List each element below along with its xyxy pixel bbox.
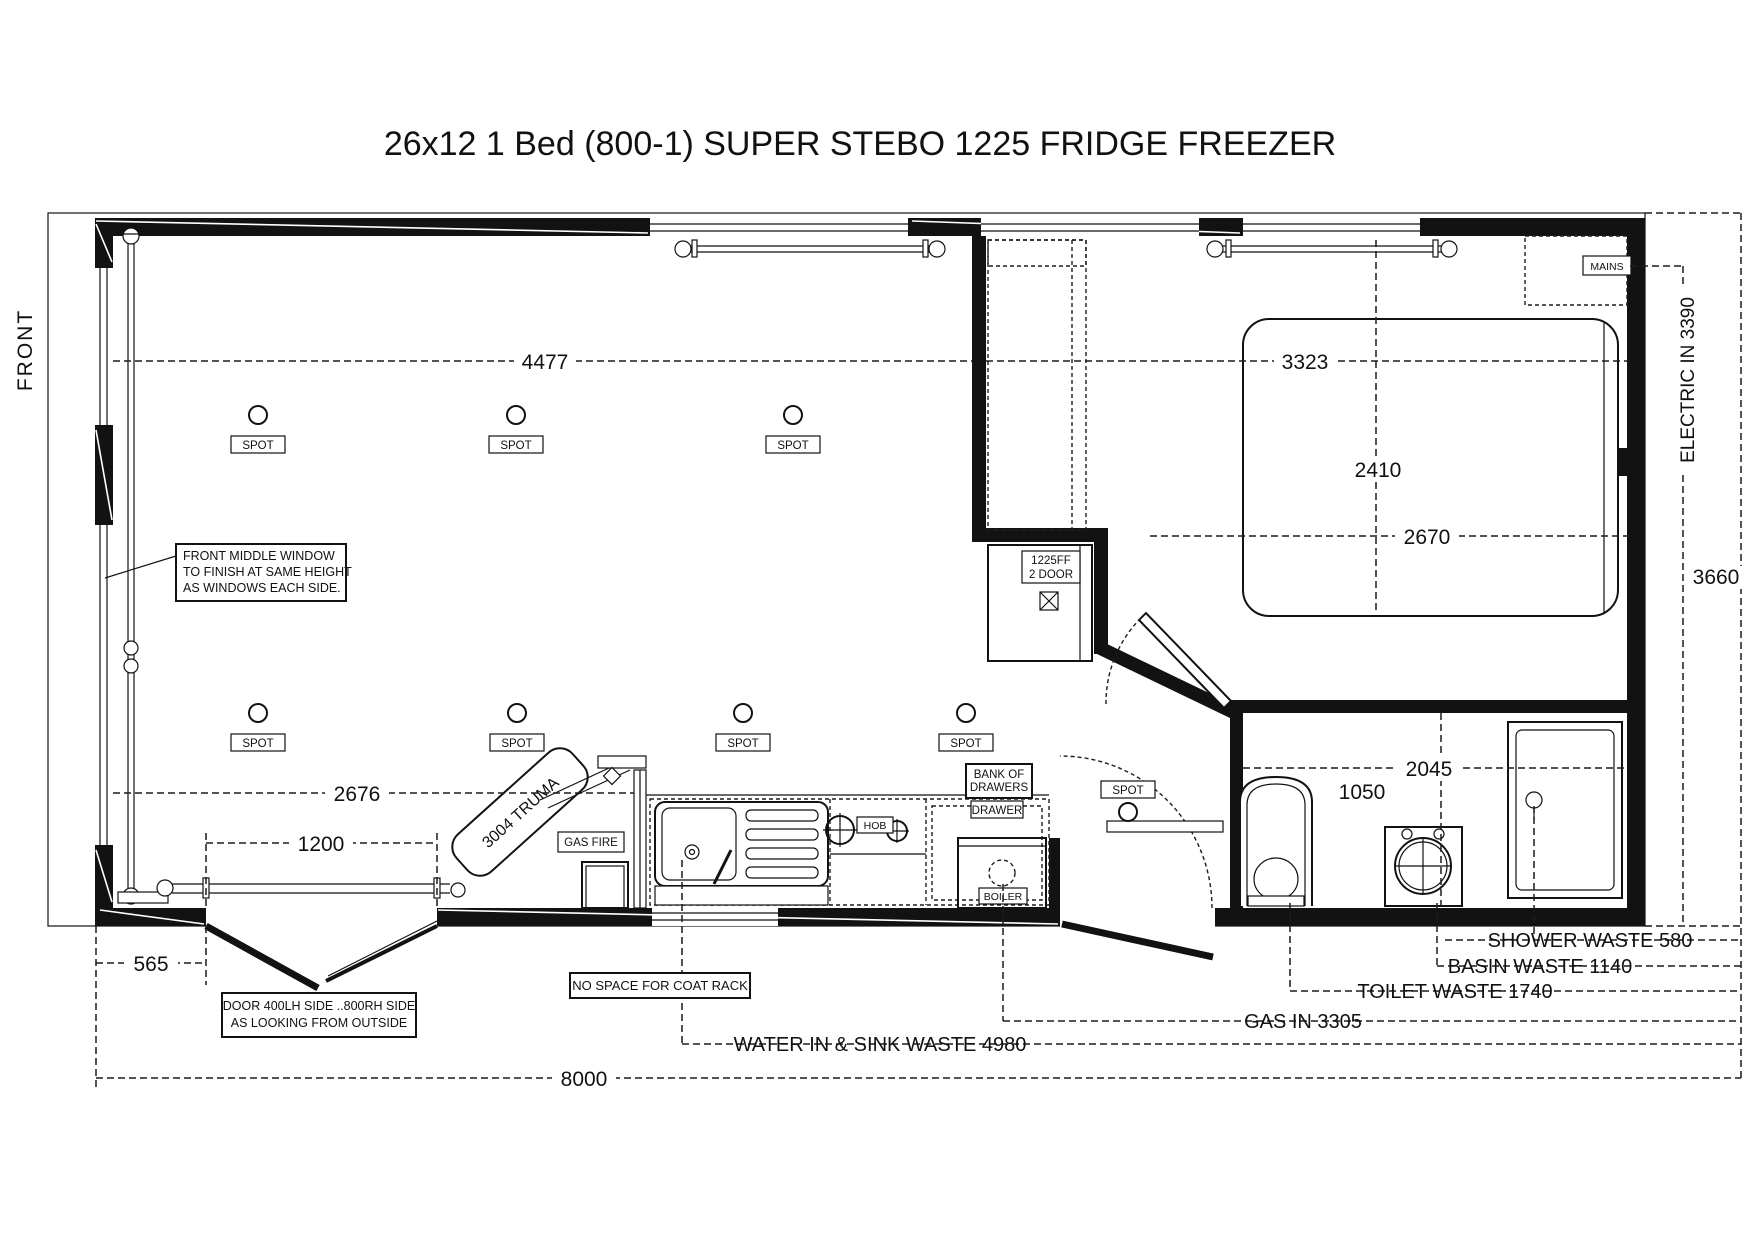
spot-label: SPOT	[727, 738, 758, 750]
spot-label: SPOT	[242, 440, 273, 452]
spotlight-icon	[1119, 803, 1137, 821]
fridge-label-line2: 2 DOOR	[1029, 569, 1073, 581]
basin-tap-left	[1402, 829, 1412, 839]
spotlight-icon	[507, 406, 525, 424]
spot-label: SPOT	[242, 738, 273, 750]
door-rail	[157, 878, 465, 898]
dim-shower-waste: SHOWER WASTE 580	[1488, 930, 1693, 952]
main-door-opening	[206, 906, 437, 928]
dim-3660: 3660	[1693, 566, 1740, 589]
spot-label: SPOT	[1112, 785, 1143, 797]
coat-rack-note: NO SPACE FOR COAT RACK	[570, 973, 750, 998]
boiler-unit: BOILER	[958, 838, 1046, 908]
dim-basin-waste: BASIN WASTE 1140	[1448, 956, 1633, 978]
front-window-lower	[93, 525, 113, 845]
spotlight-icon	[508, 704, 526, 722]
bathroom	[1240, 722, 1622, 906]
spot-label: SPOT	[777, 440, 808, 452]
mains-label: MAINS	[1583, 256, 1631, 275]
toilet-base	[1248, 896, 1304, 906]
shower	[1508, 722, 1622, 898]
bedroom: MAINS	[988, 236, 1631, 616]
front-window-upper	[93, 268, 113, 425]
door-note-line1: DOOR 400LH SIDE ..800RH SIDE	[223, 999, 415, 1013]
front-window-note-line2: TO FINISH AT SAME HEIGHT	[183, 565, 352, 579]
basin-tap-right	[1434, 829, 1444, 839]
dim-2410: 2410	[1355, 459, 1402, 482]
spot-label: SPOT	[950, 738, 981, 750]
dim-electric-in: ELECTRIC IN 3390	[1678, 297, 1699, 463]
hall: SPOT	[1101, 781, 1223, 832]
page-title: 26x12 1 Bed (800-1) SUPER STEBO 1225 FRI…	[384, 125, 1336, 163]
dim-8000: 8000	[561, 1068, 608, 1091]
spotlight-icon	[734, 704, 752, 722]
hob-unit: HOB	[823, 813, 926, 854]
spot-label: SPOT	[500, 440, 531, 452]
dim-1050: 1050	[1339, 781, 1386, 804]
curtain-rail-front	[112, 228, 168, 904]
kitchen: HOB BANK OF DRAWERS DRAWER BOILER 3004 T…	[157, 741, 1049, 908]
top-window-lounge	[650, 217, 908, 237]
spotlight: SPOT	[231, 704, 285, 751]
dim-gas-in: GAS IN 3305	[1244, 1011, 1362, 1033]
spot-label: SPOT	[501, 738, 532, 750]
coat-rack-note-text: NO SPACE FOR COAT RACK	[572, 978, 748, 993]
gas-fire-label: GAS FIRE	[564, 837, 618, 849]
sink-unit	[655, 802, 828, 905]
spotlight: SPOT	[766, 406, 820, 453]
door-note: DOOR 400LH SIDE ..800RH SIDE AS LOOKING …	[222, 993, 416, 1037]
dim-water-in: WATER IN & SINK WASTE 4980	[734, 1034, 1027, 1056]
spotlight: SPOT	[939, 704, 993, 751]
dim-2676: 2676	[334, 783, 381, 806]
spotlight-icon	[249, 704, 267, 722]
fridge-label-line1: 1225FF	[1031, 555, 1071, 567]
hall-door-opening	[1060, 906, 1215, 928]
boiler-flue	[989, 860, 1015, 886]
fridge-label: 1225FF 2 DOOR	[1022, 551, 1080, 583]
hall-diagonal-wall	[1097, 642, 1236, 718]
floorplan-page: 26x12 1 Bed (800-1) SUPER STEBO 1225 FRI…	[0, 0, 1755, 1240]
spotlight: SPOT	[716, 704, 770, 751]
bottom-window-kitchen	[652, 906, 778, 926]
dimension-labels: 4477 3323 2410 2670 2676 1200 565 8000 2…	[124, 288, 1746, 1091]
shower-tray	[1516, 730, 1614, 890]
bank-of-drawers-line1: BANK OF	[974, 769, 1024, 781]
hob-label: HOB	[864, 820, 887, 832]
spotlight-icon	[784, 406, 802, 424]
spotlights-row2: SPOT SPOT SPOT SPOT	[231, 704, 993, 751]
truma-label: 3004 TRUMA	[479, 774, 562, 852]
curtain-rail-bedroom	[1207, 240, 1457, 257]
mains-label-text: MAINS	[1590, 261, 1623, 273]
interior-walls	[634, 236, 1628, 908]
kitchen-stub-wall	[1049, 838, 1060, 908]
vent-symbol	[1040, 592, 1058, 610]
main-door-leaf-right	[326, 926, 437, 981]
sink-bowl	[662, 808, 736, 880]
dim-toilet-waste: TOILET WASTE 1740	[1357, 981, 1552, 1003]
top-window-middle	[981, 217, 1199, 237]
dim-2045: 2045	[1406, 758, 1453, 781]
dim-3323: 3323	[1282, 351, 1329, 374]
top-window-bedroom	[1243, 217, 1420, 237]
flue-bracket	[598, 756, 646, 768]
dim-2670: 2670	[1404, 526, 1451, 549]
spotlight-hall: SPOT	[1101, 781, 1155, 821]
front-window-note-line1: FRONT MIDDLE WINDOW	[183, 549, 335, 563]
floorplan-drawing: 26x12 1 Bed (800-1) SUPER STEBO 1225 FRI…	[0, 0, 1755, 1240]
shower-drain	[1526, 792, 1542, 808]
dim-1200: 1200	[298, 833, 345, 856]
toilet	[1240, 777, 1312, 906]
spotlight-icon	[957, 704, 975, 722]
spotlight: SPOT	[231, 406, 285, 453]
front-window-note: FRONT MIDDLE WINDOW TO FINISH AT SAME HE…	[176, 544, 352, 601]
hall-step	[1107, 821, 1223, 832]
bank-of-drawers-line2: DRAWERS	[970, 782, 1029, 794]
drawer-label: DRAWER	[972, 805, 1023, 817]
front-side-label: FRONT	[14, 309, 37, 391]
door-note-line2: AS LOOKING FROM OUTSIDE	[231, 1016, 407, 1030]
shower-enclosure	[1508, 722, 1622, 898]
basin	[1385, 827, 1462, 906]
spotlight: SPOT	[489, 406, 543, 453]
bathroom-wall-top	[1230, 700, 1628, 713]
dim-4477: 4477	[522, 351, 569, 374]
main-door-leaf-left	[206, 926, 318, 988]
drawers-labels: BANK OF DRAWERS DRAWER	[966, 764, 1032, 818]
curtain-rail-lounge	[675, 240, 945, 257]
fridge-area: 1225FF 2 DOOR	[988, 545, 1092, 661]
hall-door-leaf	[1062, 924, 1213, 957]
spotlight: SPOT	[490, 704, 544, 751]
gas-fire-unit: 3004 TRUMA GAS FIRE	[445, 741, 646, 908]
gas-fire-cabinet	[582, 862, 628, 908]
spotlights-row1: SPOT SPOT SPOT	[231, 406, 820, 453]
spotlight-icon	[249, 406, 267, 424]
front-window-note-line3: AS WINDOWS EACH SIDE.	[183, 581, 341, 595]
dim-565: 565	[133, 953, 168, 976]
door-strike	[1618, 448, 1627, 476]
